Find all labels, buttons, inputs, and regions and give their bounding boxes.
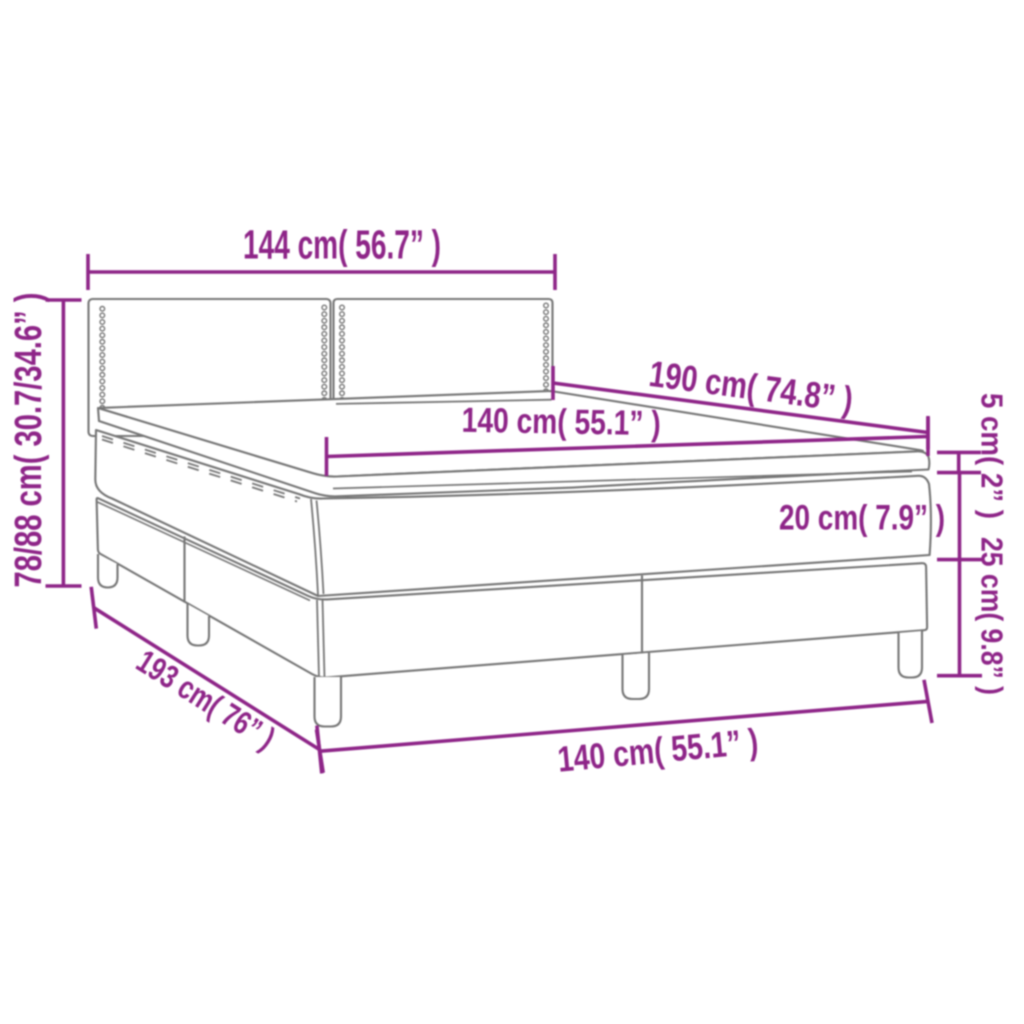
svg-text:78/88 cm( 30.7/34.6” ): 78/88 cm( 30.7/34.6” )	[8, 293, 50, 588]
svg-text:20 cm( 7.9” ): 20 cm( 7.9” )	[779, 499, 945, 538]
svg-text:140 cm( 55.1” ): 140 cm( 55.1” )	[461, 401, 661, 443]
svg-text:25 cm( 9.8” ): 25 cm( 9.8” )	[975, 537, 1009, 695]
svg-text:5 cm( 2” ): 5 cm( 2” )	[975, 393, 1009, 519]
svg-text:144 cm( 56.7” ): 144 cm( 56.7” )	[243, 222, 441, 268]
